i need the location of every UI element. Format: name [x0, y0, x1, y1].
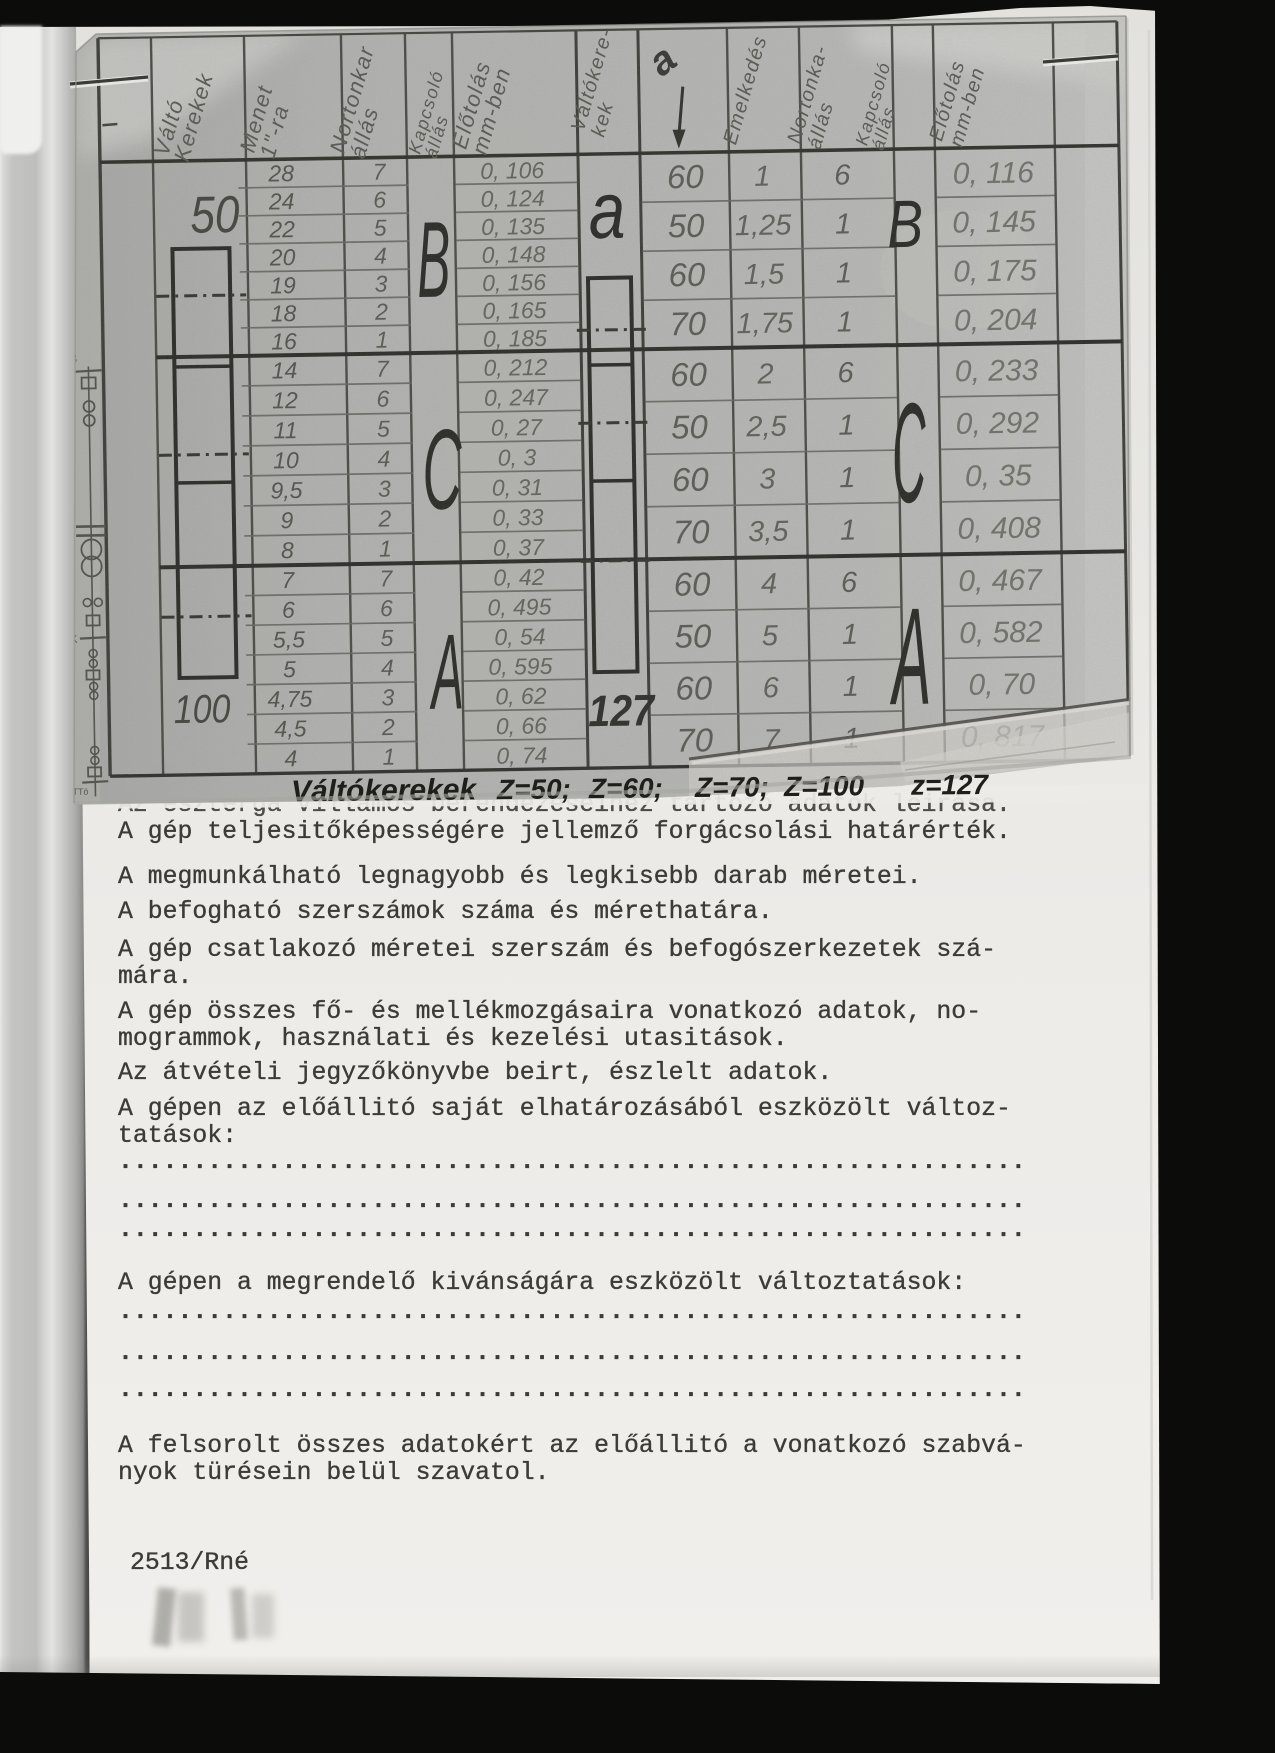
- svg-text:Z=50;: Z=50;: [496, 773, 571, 805]
- svg-text:Váltókerekek: Váltókerekek: [291, 773, 478, 808]
- svg-text:Z=100: Z=100: [783, 770, 865, 802]
- svg-text:4: 4: [67, 566, 73, 578]
- svg-text:Z=60;: Z=60;: [588, 772, 663, 804]
